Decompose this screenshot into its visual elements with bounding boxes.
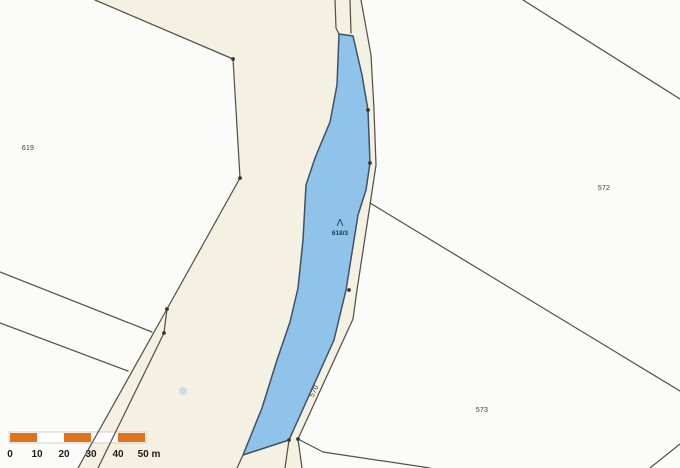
parcel-label-619: 619 — [22, 145, 34, 152]
scalebar-segment — [64, 433, 91, 442]
water-dot — [179, 387, 187, 395]
scalebar-label: 40 — [112, 449, 124, 460]
vertex-marker — [287, 438, 291, 442]
scalebar-label: 20 — [58, 449, 70, 460]
parcel-label-573: 573 — [476, 407, 488, 414]
scalebar-segment — [37, 433, 64, 442]
landuse-symbol: Λ — [337, 218, 344, 229]
cadastral-map[interactable]: 01020304050 mΛ619572573570618/3 — [0, 0, 680, 468]
scalebar-segment — [118, 433, 145, 442]
parcel-label-572: 572 — [598, 185, 610, 192]
vertex-marker — [238, 176, 242, 180]
scalebar-label: 0 — [7, 449, 13, 460]
parcel-label-618-3: 618/3 — [332, 230, 349, 237]
scalebar-segment — [10, 433, 37, 442]
vertex-marker — [162, 331, 166, 335]
vertex-marker — [231, 57, 235, 61]
map-viewport: 01020304050 mΛ619572573570618/3 — [0, 0, 680, 468]
vertex-marker — [165, 307, 169, 311]
vertex-marker — [366, 108, 370, 112]
scalebar-label: 50 m — [138, 449, 161, 460]
vertex-marker — [296, 437, 300, 441]
vertex-marker — [347, 288, 351, 292]
scalebar-label: 10 — [31, 449, 43, 460]
vertex-marker — [368, 161, 372, 165]
